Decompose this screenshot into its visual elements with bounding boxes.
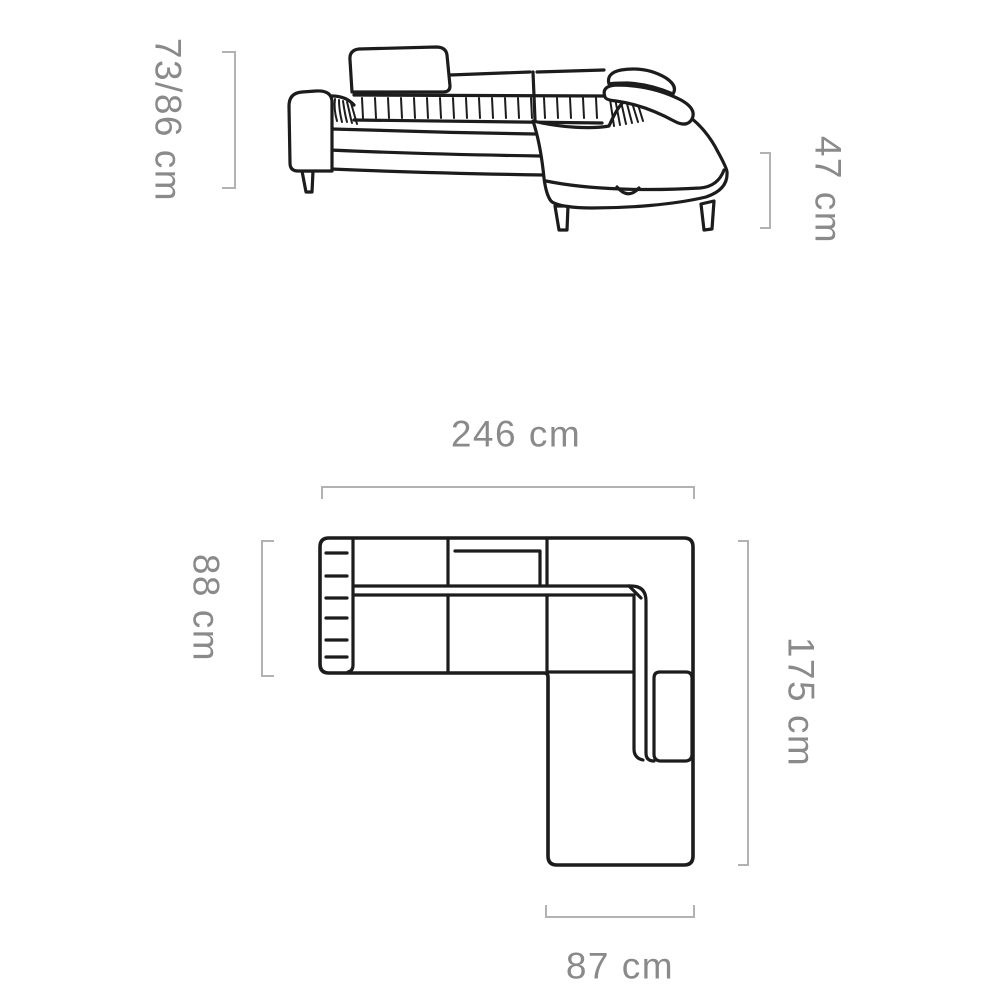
plan-armrest-line bbox=[348, 539, 353, 672]
dimensions: 73/86 cm 47 cm 246 cm 88 cm 175 cm 87 cm bbox=[148, 38, 849, 987]
plan-backrest-band-inner bbox=[353, 595, 643, 760]
width-dimension-bracket bbox=[322, 487, 694, 499]
sofa-left-armrest bbox=[289, 91, 332, 171]
plan-middle-cushion bbox=[455, 551, 540, 585]
sofa-dimension-diagram: 73/86 cm 47 cm 246 cm 88 cm 175 cm 87 cm bbox=[0, 0, 1000, 1000]
chaise-right-leg bbox=[701, 201, 714, 230]
height-dimension-bracket bbox=[222, 52, 235, 188]
length-dimension-label: 175 cm bbox=[781, 637, 822, 767]
length-dimension-bracket bbox=[738, 541, 748, 865]
seat-height-dimension-label: 47 cm bbox=[808, 136, 849, 244]
chaise-width-dimension-label: 87 cm bbox=[566, 946, 674, 987]
headrest-cushion bbox=[350, 47, 450, 92]
height-dimension-label: 73/86 cm bbox=[148, 38, 189, 202]
width-dimension-label: 246 cm bbox=[451, 414, 581, 455]
plan-armrest-hatches bbox=[326, 553, 347, 657]
backrest-stripe-lines bbox=[362, 98, 597, 118]
seat-height-dimension-bracket bbox=[760, 153, 770, 228]
plan-chaise-back-cushion bbox=[654, 672, 692, 761]
chaise-width-dimension-bracket bbox=[546, 905, 694, 917]
diagram-canvas: 73/86 cm 47 cm 246 cm 88 cm 175 cm 87 cm bbox=[0, 0, 1000, 1000]
sofa-base-lines bbox=[330, 129, 544, 175]
sofa-side-view bbox=[289, 47, 727, 230]
depth-dimension-bracket bbox=[262, 541, 274, 676]
sofa-left-leg bbox=[302, 171, 313, 192]
depth-dimension-label: 88 cm bbox=[186, 554, 227, 662]
sofa-plan-view bbox=[320, 538, 693, 865]
chaise-left-leg bbox=[555, 206, 568, 230]
